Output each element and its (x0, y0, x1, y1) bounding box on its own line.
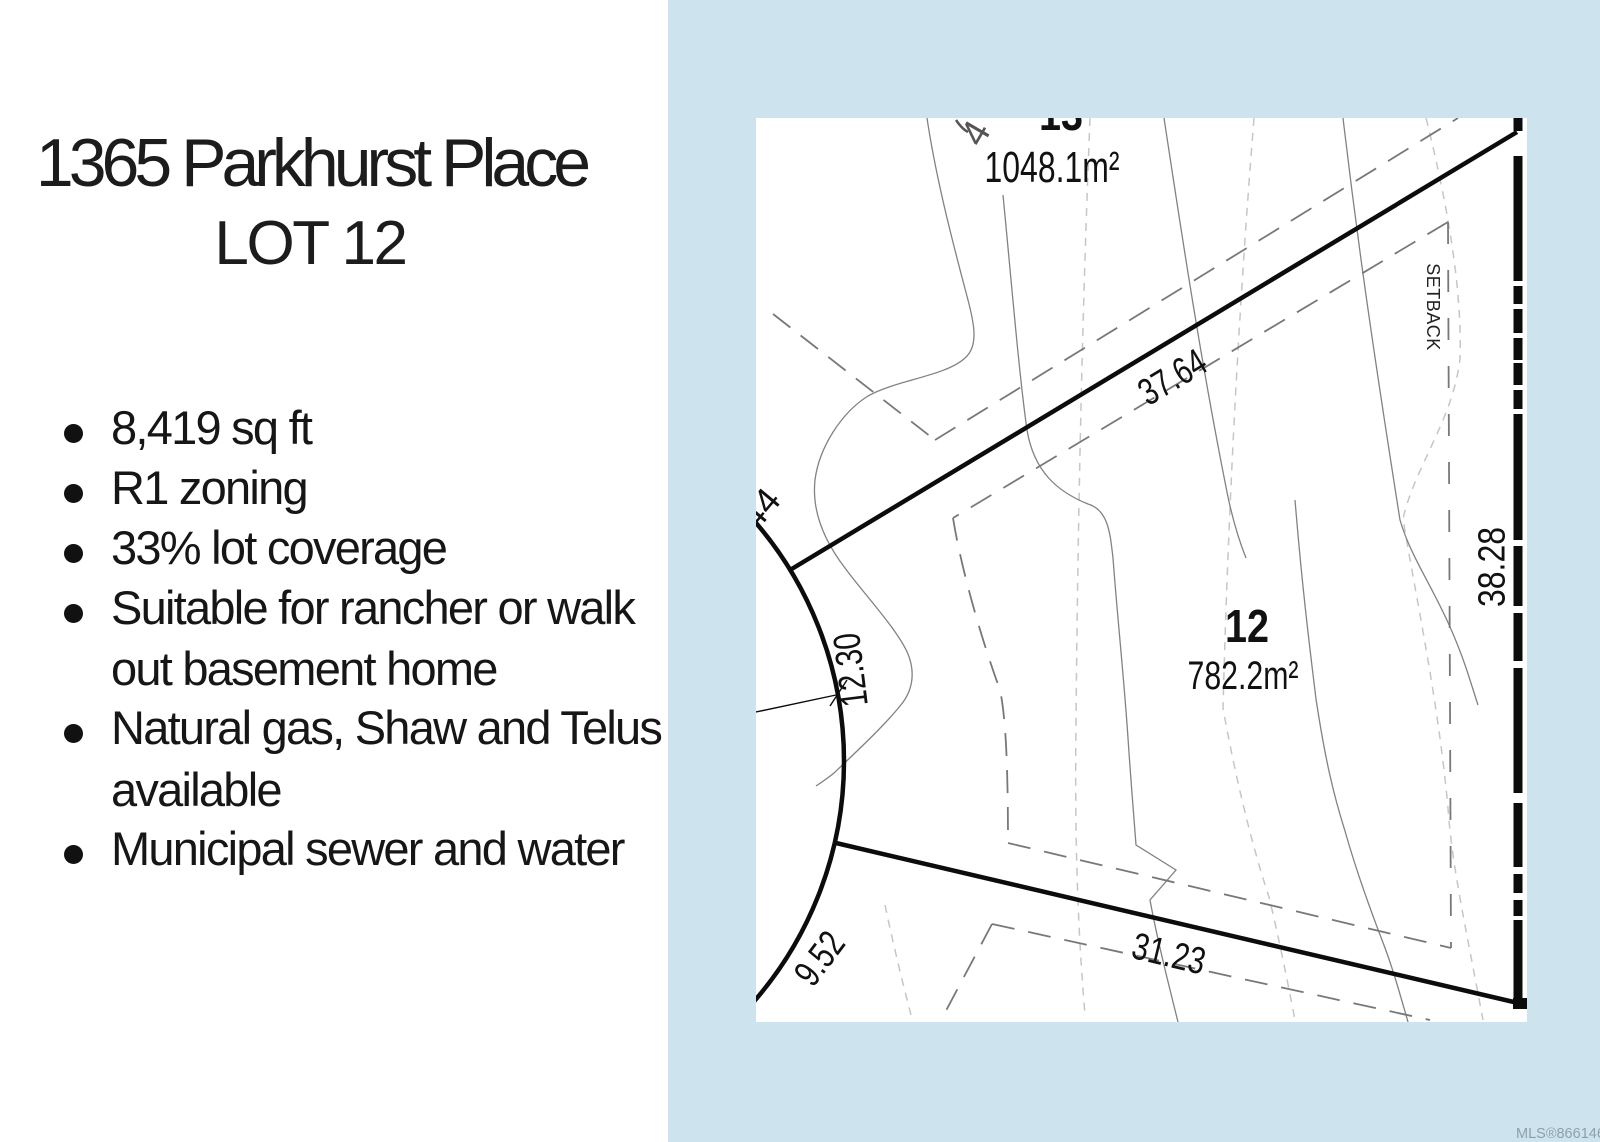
svg-text:12.30: 12.30 (826, 631, 877, 710)
svg-text:12: 12 (1225, 600, 1269, 652)
svg-text:31.23: 31.23 (1128, 925, 1210, 983)
svg-text:9.52: 9.52 (787, 924, 854, 994)
svg-text:44: 44 (756, 480, 789, 537)
svg-text:782.2m²: 782.2m² (1188, 654, 1299, 698)
svg-text:38.28: 38.28 (1472, 527, 1514, 607)
svg-text:SETBACK: SETBACK (1423, 263, 1443, 351)
svg-text:1048.1m²: 1048.1m² (985, 143, 1120, 192)
svg-text:13: 13 (1039, 118, 1083, 140)
